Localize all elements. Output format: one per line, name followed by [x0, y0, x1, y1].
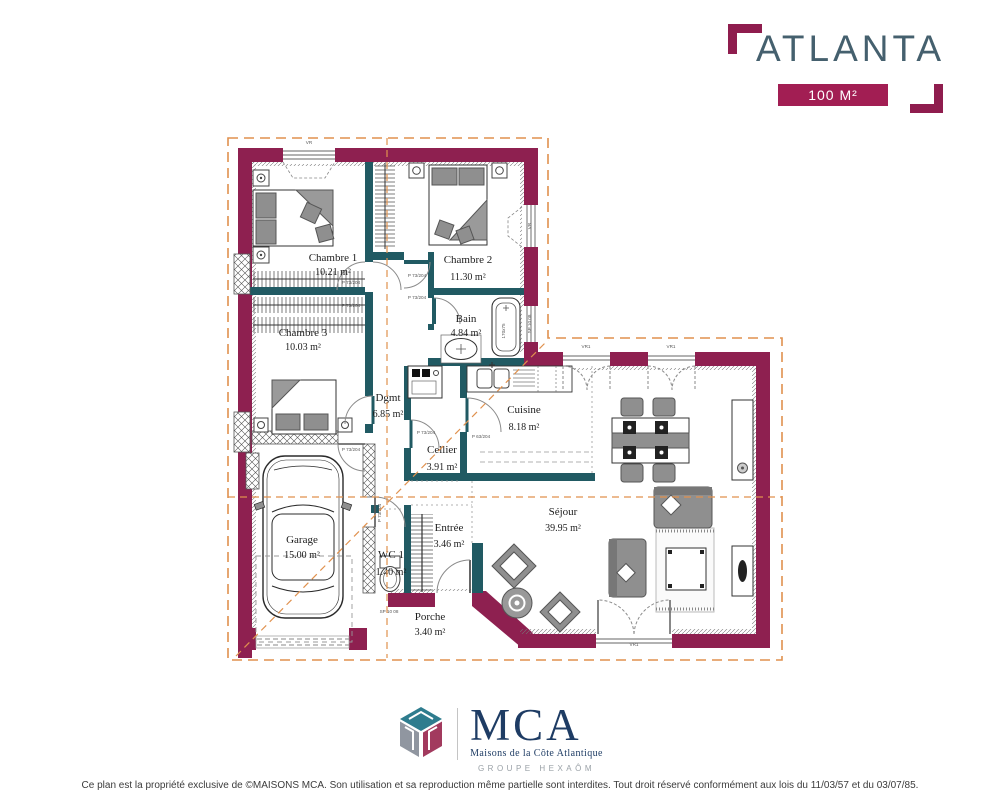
room-name: Dgmt: [375, 392, 400, 404]
window-label: VR: [527, 222, 532, 229]
furniture: [253, 163, 753, 642]
window-label: SP 10 08: [380, 609, 399, 614]
room-area: 11.30 m²: [450, 272, 485, 283]
room-area: 10.03 m²: [285, 342, 321, 353]
door-label: P 73/204: [342, 280, 361, 285]
room-area: 8.18 m²: [509, 422, 540, 433]
brand-group: GROUPE HEXAÔM: [470, 764, 603, 773]
brand-block: MCA Maisons de la Côte Atlantique GROUPE…: [0, 704, 1000, 773]
door-label: P 73/204: [417, 430, 436, 435]
furniture-entree-closet: [411, 514, 433, 592]
door-label: P 73/204: [377, 503, 382, 522]
brand-name: MCA: [470, 704, 603, 747]
room-area: 3.40 m²: [415, 627, 446, 638]
room-area: 10.21 m²: [315, 267, 351, 278]
room-name: Porche: [415, 611, 446, 623]
room-name: Cellier: [427, 444, 457, 456]
furniture-dining: [612, 398, 689, 482]
door-label: P 63/204: [472, 434, 491, 439]
room-name: Chambre 3: [279, 327, 328, 339]
room-name: Garage: [286, 534, 318, 546]
room-area: 4.84 m²: [451, 328, 482, 339]
brand-tagline: Maisons de la Côte Atlantique: [470, 748, 603, 759]
room-name: WC 1: [378, 549, 404, 561]
room-area: 1.40 m²: [376, 567, 407, 578]
room-area: 3.46 m²: [434, 539, 465, 550]
room-area: 15.00 m²: [284, 550, 320, 561]
room-name: Chambre 1: [309, 252, 358, 264]
room-name: Séjour: [549, 506, 578, 518]
brand-divider: [457, 708, 458, 760]
room-area: 39.95 m²: [545, 523, 581, 534]
room-name: Entrée: [435, 522, 464, 534]
mca-logo-icon: [397, 704, 445, 760]
copyright-notice: Ce plan est la propriété exclusive de ©M…: [0, 780, 1000, 791]
window-label: VR1: [667, 344, 676, 349]
room-name: Cuisine: [507, 404, 541, 416]
door-label: P 73/204: [408, 273, 427, 278]
floor-plan: VR VR VR1 VR1 VR1 SP 10 08 SP 10 08 170x…: [0, 0, 1000, 800]
furniture-chambre2: [375, 163, 507, 249]
door-label: P 73/204: [342, 447, 361, 452]
plan-sheet: ATLANTA 100 M²: [0, 0, 1000, 800]
window-label: SP 10 08: [527, 314, 532, 333]
room-name: Chambre 2: [444, 254, 493, 266]
bathtub-size-label: 170x75: [501, 323, 506, 339]
door-label: P 73/204: [342, 303, 361, 308]
room-area: 6.85 m²: [373, 409, 404, 420]
furniture-chambre3: [253, 297, 365, 434]
room-name: Bain: [456, 313, 477, 325]
window-label: VR: [306, 140, 313, 145]
window-label: VR1: [582, 344, 591, 349]
furniture-car: [254, 456, 352, 642]
door-label: P 73/204: [408, 295, 427, 300]
window-label: VR1: [630, 642, 639, 647]
room-area: 3.91 m²: [427, 462, 458, 473]
furniture-cuisine: [408, 362, 572, 398]
